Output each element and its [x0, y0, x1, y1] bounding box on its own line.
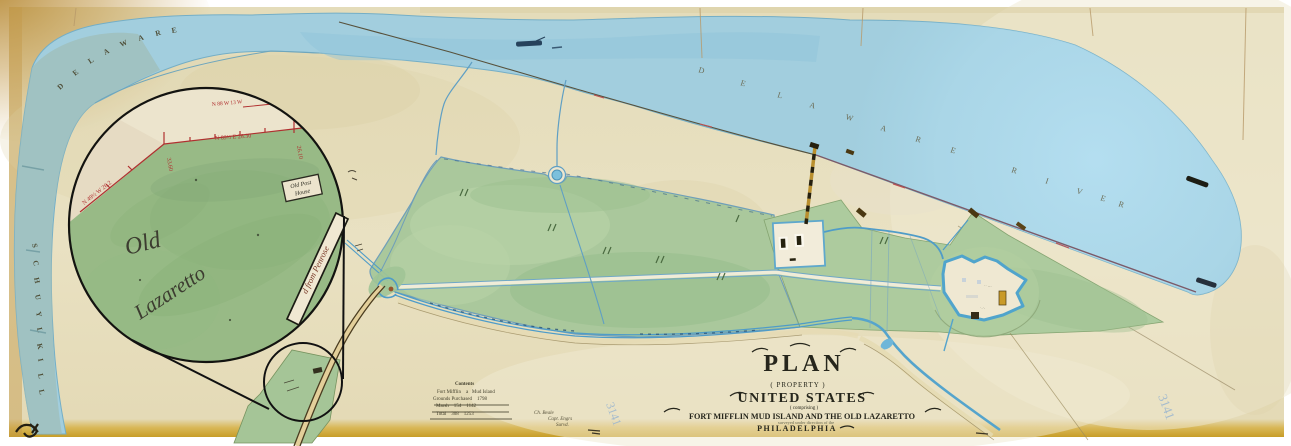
svg-text:Fort Mifflin a Mud Island: Fort Mifflin a Mud Island — [437, 390, 495, 395]
svg-text:·· ․․․: ·· ․․․ — [984, 283, 992, 288]
svg-text:UNITED STATES: UNITED STATES — [737, 391, 866, 406]
svg-text:PHILADELPHIA: PHILADELPHIA — [757, 424, 837, 433]
svg-text:·․·․: ·․·․ — [980, 305, 985, 310]
svg-text:( comprising ): ( comprising ) — [790, 406, 819, 411]
svg-text:Survd.: Survd. — [556, 423, 569, 428]
svg-text:Total 308 1253: Total 308 1253 — [436, 412, 474, 417]
svg-text:Capt. Engrs: Capt. Engrs — [548, 417, 572, 422]
svg-text:( PROPERTY ): ( PROPERTY ) — [770, 381, 825, 389]
svg-text:Contents: Contents — [455, 382, 474, 387]
svg-text:PLAN: PLAN — [763, 351, 844, 377]
svg-text:Ch. Beale: Ch. Beale — [534, 411, 554, 416]
svg-text:Grounds Purchased 1798: Grounds Purchased 1798 — [433, 397, 488, 402]
